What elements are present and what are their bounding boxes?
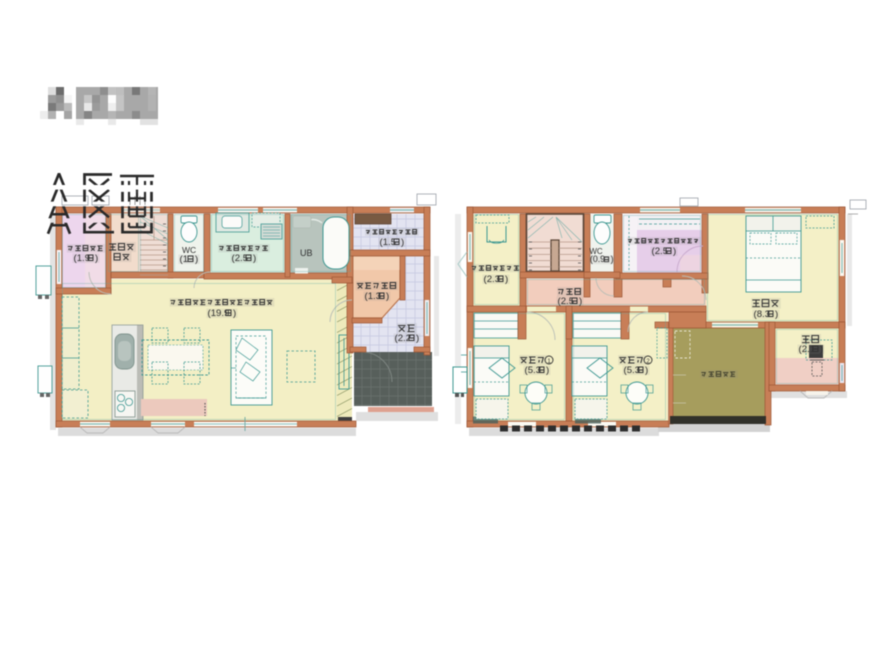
svg-text:): ) [416, 333, 419, 344]
svg-text:): ) [775, 309, 778, 320]
svg-text:): ) [386, 291, 389, 302]
svg-text:): ) [95, 253, 98, 264]
svg-text:(1: (1 [180, 254, 189, 265]
svg-text:): ) [195, 254, 198, 265]
svg-text:): ) [253, 253, 256, 264]
svg-text:(0.9: (0.9 [590, 254, 605, 264]
svg-text:): ) [579, 296, 582, 307]
svg-text:): ) [645, 365, 648, 376]
svg-text:): ) [505, 274, 508, 285]
svg-text:): ) [401, 237, 404, 248]
svg-text:): ) [611, 254, 614, 264]
svg-text:): ) [233, 308, 236, 319]
svg-text:): ) [820, 344, 823, 355]
svg-text:UB: UB [300, 248, 313, 258]
svg-text:): ) [673, 246, 676, 257]
svg-text:): ) [546, 365, 549, 376]
